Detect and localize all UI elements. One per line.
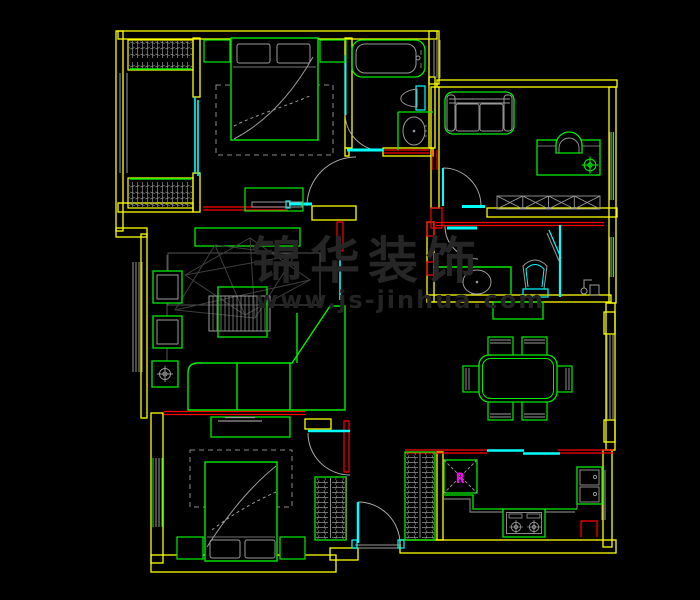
chair-backs-bottom — [490, 414, 545, 417]
beam-bath1 — [384, 150, 429, 153]
window-dining — [607, 335, 613, 420]
wall-step-left — [116, 228, 147, 237]
desk-chair — [556, 132, 582, 153]
tv-set — [218, 418, 262, 422]
wall-bath1-bottom — [383, 148, 433, 156]
hanger-rail-bottom — [129, 179, 192, 207]
wall-divider-upper — [193, 38, 200, 97]
door-arc-bath1 — [345, 113, 383, 151]
fridge-marker: R — [456, 471, 465, 487]
dining-area — [463, 302, 572, 420]
nightstand2-right — [280, 537, 305, 559]
entry-threshold — [355, 545, 400, 548]
dining-table — [479, 355, 557, 402]
jamb-entry-b — [398, 540, 404, 548]
study — [445, 92, 600, 209]
jamb-entry-a — [352, 540, 357, 548]
beam-bath2-top — [436, 223, 604, 226]
column-entry — [344, 421, 349, 472]
door-arc-bedroom1 — [307, 157, 356, 206]
wall-right-kitchen — [603, 450, 612, 547]
hanger-rail-top — [129, 41, 192, 69]
window-balcony — [120, 73, 127, 173]
bedroom-top — [204, 38, 346, 211]
double-bed2 — [205, 462, 277, 561]
tub-drain — [416, 56, 420, 60]
bathtub — [352, 40, 425, 77]
nightstand-right — [320, 40, 346, 62]
sliding-door-kitchen — [487, 451, 560, 454]
watermark: 锦华装饰 www.js-jinhua.com — [252, 232, 545, 314]
nightstand2-left — [177, 537, 203, 559]
kitchen-riser-box — [581, 521, 597, 537]
sofa-arm-left — [447, 95, 455, 131]
shower-door-gray — [547, 233, 559, 261]
sofa-cushion-b — [480, 104, 503, 131]
bookcase-hatched — [497, 196, 600, 209]
chair-backs-top — [490, 340, 545, 343]
bathroom-top — [352, 40, 433, 150]
bookcase-dividers — [523, 196, 575, 209]
wall-kitchen-bottom — [400, 540, 616, 553]
wall-bedroom2-topright — [305, 419, 331, 429]
water-heater-symbol — [581, 280, 599, 295]
bedroom-bottom — [177, 417, 346, 561]
sofa-back — [449, 99, 510, 103]
kitchen: R — [443, 460, 602, 537]
door-arc-entry — [358, 502, 400, 544]
toilet-bowl — [401, 89, 417, 107]
wall-divider-lower — [193, 173, 200, 212]
watermark-url: www.js-jinhua.com — [256, 286, 545, 314]
bathtub-inner — [356, 44, 416, 73]
cad-floorplan-canvas: R 锦华装饰 www.js-jinhua.com — [0, 0, 700, 600]
beam-kitchen-a — [437, 450, 487, 453]
wall-entry-bottom — [330, 548, 358, 560]
nightstand-left — [204, 40, 230, 62]
counter-edge-green — [443, 495, 577, 509]
watermark-brand: 锦华装饰 — [252, 232, 484, 290]
floorplan-svg: R 锦华装饰 www.js-jinhua.com — [0, 0, 700, 600]
window-bedroom2 — [156, 458, 159, 527]
kitchen-sink-cabinet — [577, 467, 602, 504]
toilet2-seat — [526, 265, 544, 288]
entry — [405, 452, 435, 540]
wall-bedroom1-bottom — [312, 206, 356, 220]
beam-bedroom2 — [164, 412, 305, 415]
tv-cabinet2 — [211, 417, 290, 437]
beam-kitchen-b — [558, 450, 613, 453]
basin-drain — [413, 130, 416, 133]
balcony-wardrobe — [128, 40, 193, 208]
window-bedroom2-frame — [153, 458, 162, 527]
door-arc-study — [443, 168, 481, 206]
double-bed — [231, 38, 318, 140]
wall-study-top — [437, 80, 617, 87]
sliding-glazing-balcony — [195, 97, 198, 176]
sofa-arm-right — [504, 95, 512, 131]
wall-kitchen-left — [437, 452, 443, 540]
gas-stove — [503, 509, 545, 537]
sofa-cushion-a — [456, 104, 479, 131]
